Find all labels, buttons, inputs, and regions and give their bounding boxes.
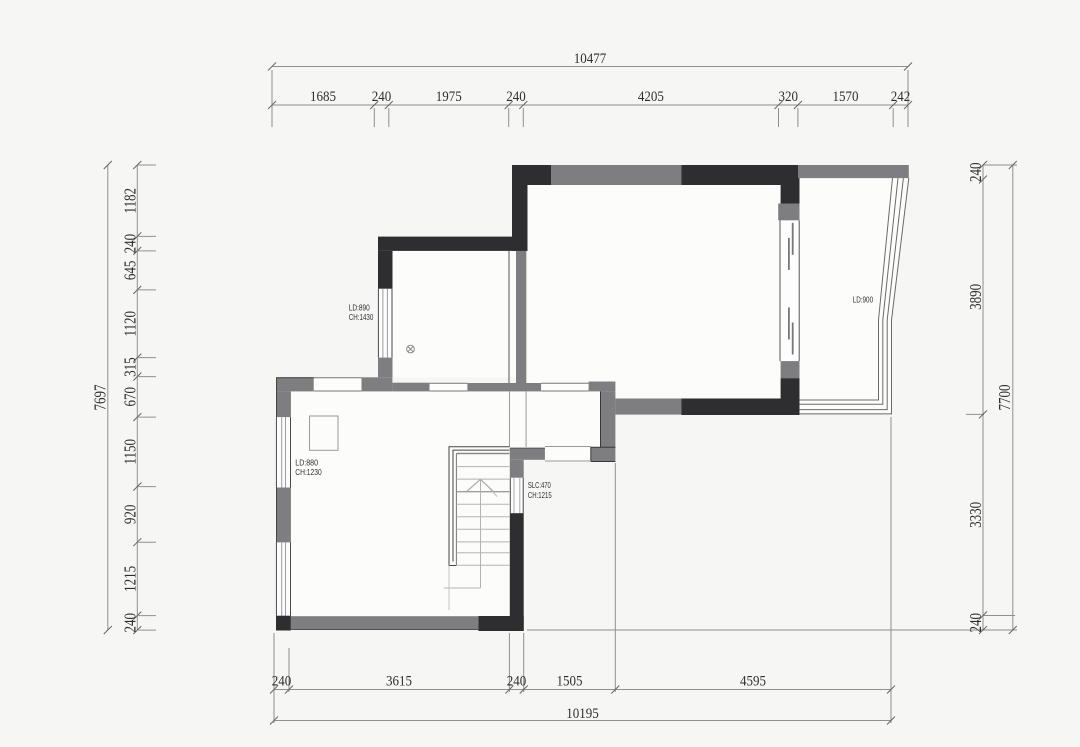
svg-text:1570: 1570 (833, 88, 859, 105)
svg-text:920: 920 (122, 505, 140, 524)
svg-text:7697: 7697 (92, 384, 110, 410)
svg-text:SLC:470: SLC:470 (528, 480, 551, 490)
svg-text:1215: 1215 (122, 566, 140, 592)
svg-text:3615: 3615 (386, 673, 412, 690)
svg-text:LD:890: LD:890 (349, 302, 370, 312)
svg-text:7700: 7700 (997, 385, 1015, 411)
svg-text:242: 242 (891, 88, 910, 105)
svg-text:240: 240 (122, 613, 140, 632)
svg-text:4205: 4205 (638, 88, 664, 105)
svg-text:3330: 3330 (968, 502, 986, 528)
svg-text:CH:1230: CH:1230 (295, 467, 322, 477)
svg-text:240: 240 (968, 162, 986, 181)
svg-text:CH:1215: CH:1215 (528, 490, 552, 500)
svg-text:670: 670 (122, 387, 140, 406)
svg-text:3890: 3890 (968, 284, 986, 310)
svg-text:1182: 1182 (122, 188, 140, 214)
svg-text:1120: 1120 (122, 311, 140, 337)
svg-text:10195: 10195 (566, 705, 598, 722)
svg-text:1505: 1505 (557, 673, 583, 690)
svg-text:10477: 10477 (574, 50, 606, 67)
svg-text:240: 240 (507, 673, 526, 690)
svg-text:1685: 1685 (310, 88, 336, 105)
svg-text:645: 645 (122, 261, 140, 280)
svg-text:4595: 4595 (740, 673, 766, 690)
svg-text:240: 240 (372, 88, 391, 105)
svg-text:320: 320 (778, 88, 797, 105)
svg-text:LD:880: LD:880 (295, 457, 318, 467)
svg-text:240: 240 (272, 673, 291, 690)
svg-text:LD:900: LD:900 (853, 295, 874, 305)
svg-text:1150: 1150 (122, 439, 140, 465)
svg-text:240: 240 (506, 88, 525, 105)
svg-text:1975: 1975 (436, 88, 462, 105)
svg-text:240: 240 (122, 234, 140, 253)
svg-text:CH:1430: CH:1430 (349, 312, 374, 322)
svg-text:240: 240 (968, 613, 986, 632)
svg-text:315: 315 (122, 357, 140, 376)
